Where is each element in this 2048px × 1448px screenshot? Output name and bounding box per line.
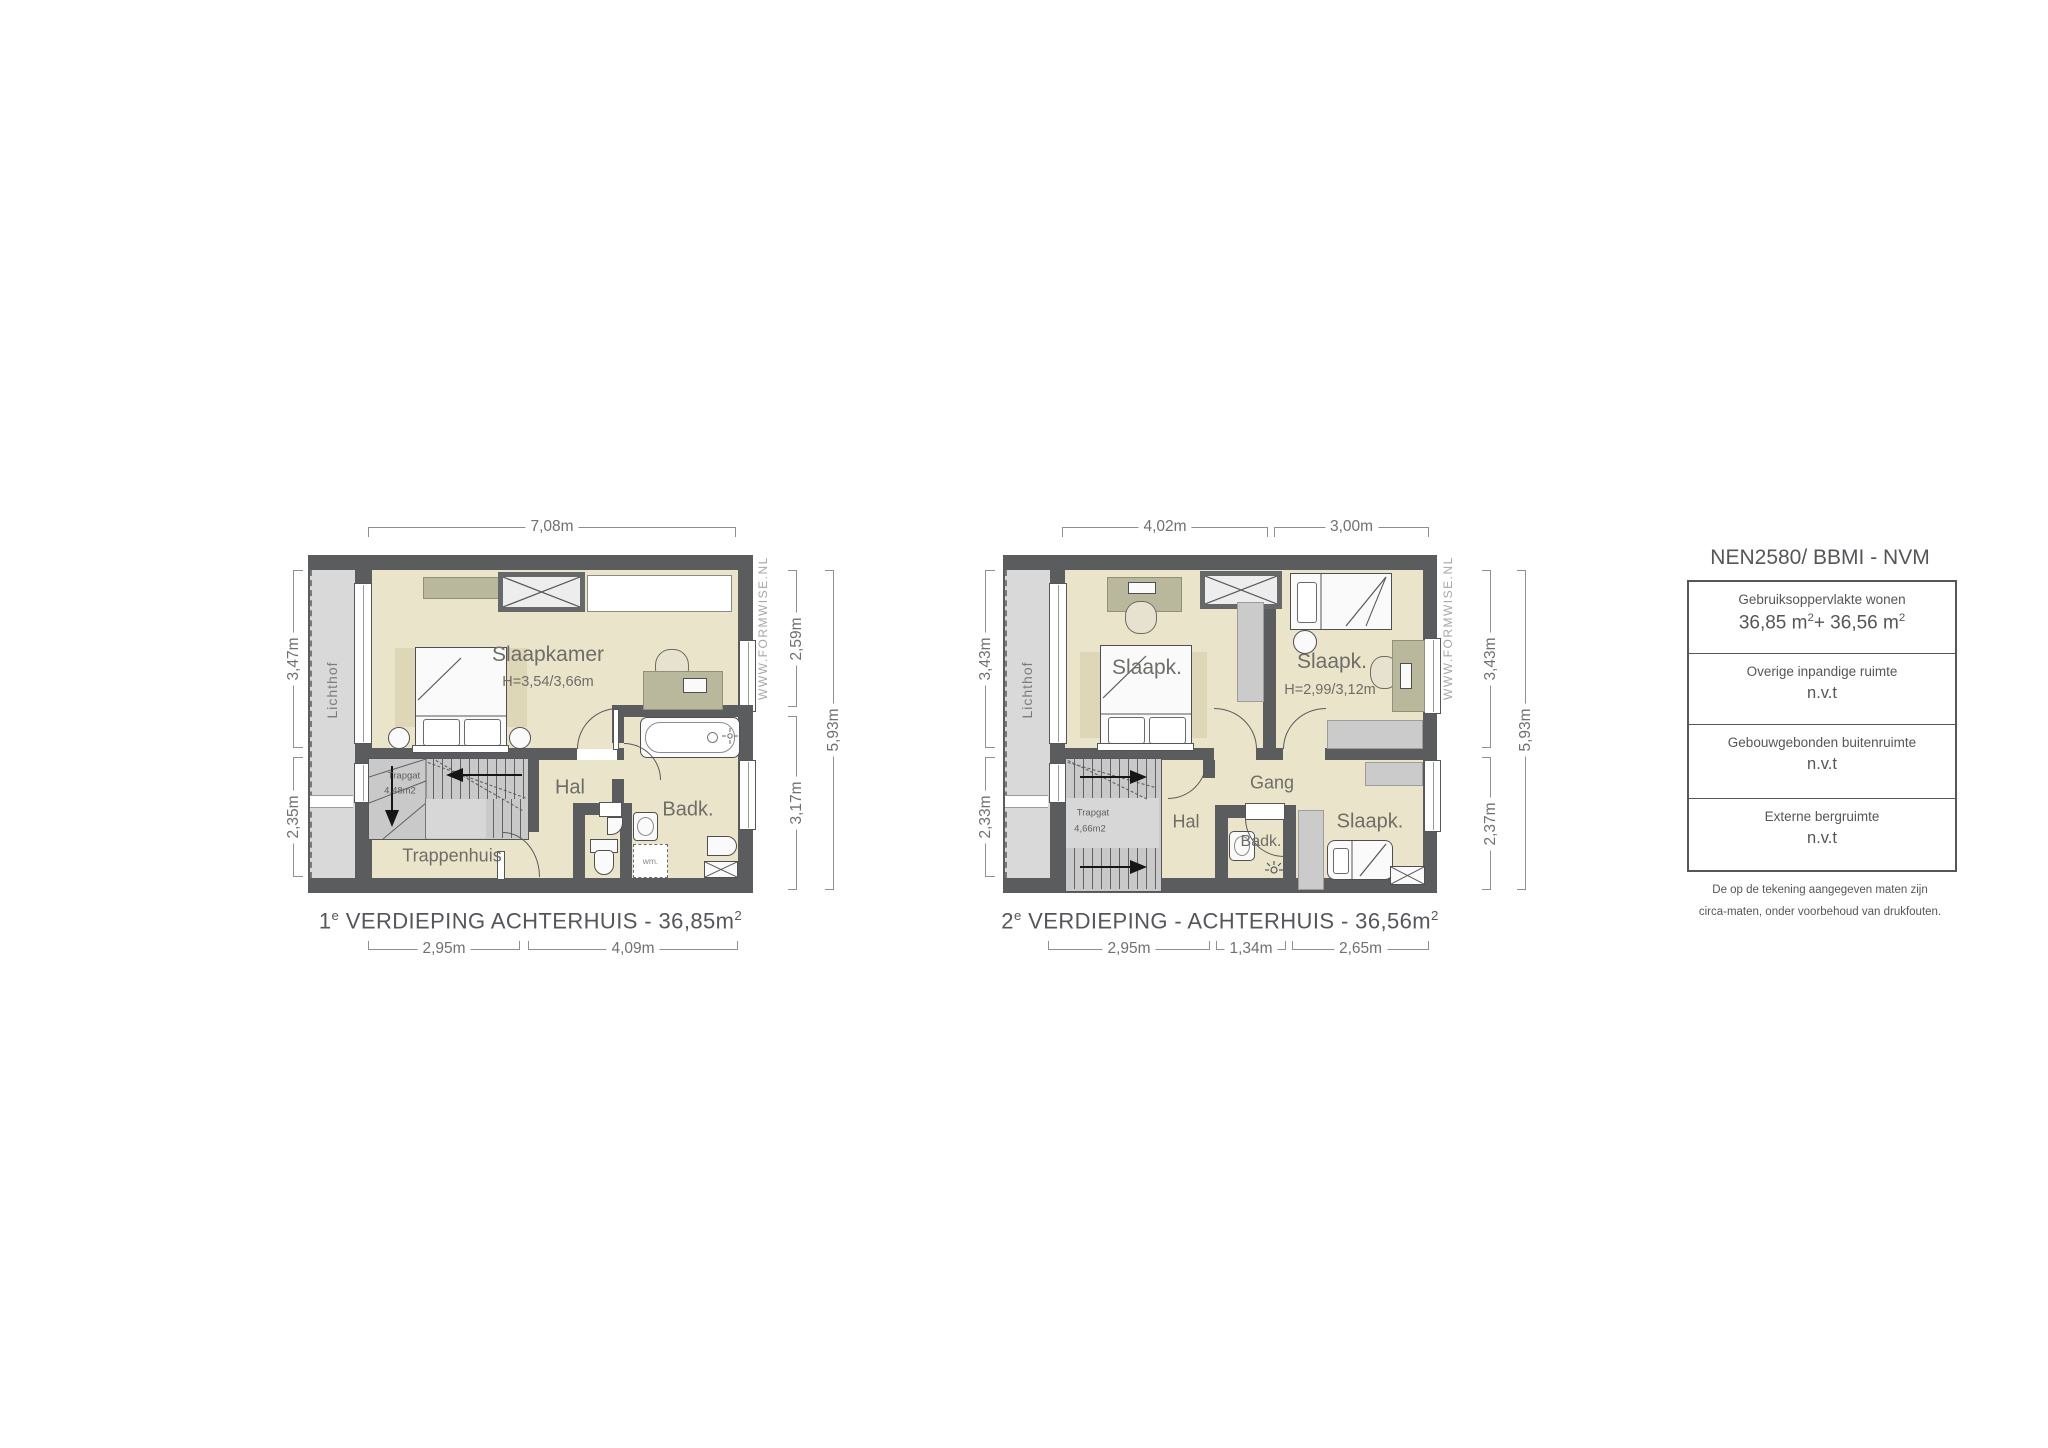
legend-row: Externe bergruimte n.v.t xyxy=(1689,798,1955,869)
legend-note-line1: De op de tekening aangegeven maten zijn xyxy=(1652,880,1988,902)
stair-arrow-icon xyxy=(1130,770,1147,784)
bidet xyxy=(707,836,737,856)
stair-arrow-line xyxy=(1080,866,1135,868)
wardrobe xyxy=(1365,762,1423,786)
stair-arrow-icon xyxy=(446,768,463,782)
legend-row-label: Overige inpandige ruimte xyxy=(1689,654,1955,679)
window xyxy=(739,640,756,712)
dim-label: 5,93m xyxy=(825,703,843,756)
watermark: WWW.FORMWISE.NL xyxy=(756,555,770,700)
legend-title: NEN2580/ BBMI - NVM xyxy=(1687,546,1953,570)
faucet-icon xyxy=(721,727,739,745)
lichthof-sill xyxy=(1005,795,1048,808)
room-label-badk: Badk. xyxy=(1241,833,1282,851)
ceiling-light-icon xyxy=(1264,860,1284,880)
washing-machine: wm. xyxy=(633,844,668,878)
door-leaf xyxy=(599,802,622,817)
bathtub-drain xyxy=(707,732,718,743)
room-label-slaapkamer: Slaapkamer xyxy=(492,643,604,667)
dim-top-left: 4,02m xyxy=(1062,527,1268,528)
bathtub xyxy=(640,717,740,758)
dim-label: 3,43m xyxy=(977,632,995,685)
dim-label: 3,43m xyxy=(1482,632,1500,685)
radiator-icon xyxy=(704,861,738,878)
wardrobe xyxy=(1237,602,1264,702)
window xyxy=(1424,638,1441,714)
stair-arrow-line xyxy=(1080,776,1135,778)
single-bed xyxy=(1327,840,1393,880)
interior-wall xyxy=(585,803,599,815)
stair-landing xyxy=(425,799,486,838)
legend-row: Gebruiksoppervlakte wonen 36,85 m2+ 36,5… xyxy=(1689,582,1955,653)
dim-bottom-left: 2,95m xyxy=(1048,949,1210,950)
radiator-icon xyxy=(1390,866,1425,885)
single-bed xyxy=(1290,573,1392,630)
dim-right-total: 5,93m xyxy=(833,570,834,890)
headboard xyxy=(412,745,509,753)
dim-label: 2,35m xyxy=(285,790,303,843)
dim-bottom-middle: 1,34m xyxy=(1216,949,1286,950)
pillow xyxy=(1149,717,1186,744)
monitor xyxy=(1128,582,1156,594)
dim-label: 2,65m xyxy=(1334,940,1387,958)
dim-label: 2,59m xyxy=(788,612,806,665)
room-label-hal: Hal xyxy=(1172,812,1199,833)
legend-row-value: n.v.t xyxy=(1689,679,1955,703)
stair-arrow-icon xyxy=(385,810,399,827)
room-label-slaapk-left: Slaapk. xyxy=(1112,656,1182,680)
dim-label: 4,09m xyxy=(606,940,659,958)
dim-label: 2,95m xyxy=(1102,940,1155,958)
legend-row-value: 36,85 m2+ 36,56 m2 xyxy=(1689,607,1955,634)
legend-table: Gebruiksoppervlakte wonen 36,85 m2+ 36,5… xyxy=(1687,580,1957,872)
dim-top: 7,08m xyxy=(368,527,736,528)
room-label-gang: Gang xyxy=(1250,773,1294,794)
desk-chair xyxy=(1125,601,1157,634)
interior-wall xyxy=(1256,748,1283,760)
stair-arrow-icon xyxy=(1130,860,1147,874)
washing-machine-label: wm. xyxy=(643,856,659,866)
toilet-bowl xyxy=(594,850,614,875)
dresser xyxy=(423,577,499,599)
watermark: WWW.FORMWISE.NL xyxy=(1441,555,1455,700)
dim-bottom-right: 4,09m xyxy=(528,949,738,950)
room-label-hal: Hal xyxy=(555,777,585,800)
monitor xyxy=(683,678,707,693)
monitor xyxy=(1400,663,1412,689)
dim-label: 2,37m xyxy=(1482,797,1500,850)
dim-label: 4,02m xyxy=(1138,518,1191,536)
dim-right-total: 5,93m xyxy=(1525,570,1526,890)
dim-label: 3,00m xyxy=(1325,518,1378,536)
legend-note: De op de tekening aangegeven maten zijn … xyxy=(1652,880,1988,924)
window xyxy=(739,760,756,830)
dim-bottom-right: 2,65m xyxy=(1292,949,1429,950)
stair-arrow-line xyxy=(462,774,522,776)
pillow xyxy=(1108,717,1145,744)
dim-left-lower: 2,35m xyxy=(293,757,294,877)
interior-wall xyxy=(1263,602,1276,748)
dim-right-lower: 3,17m xyxy=(796,716,797,890)
window xyxy=(354,583,372,744)
dim-label: 3,17m xyxy=(788,776,806,829)
pillow xyxy=(1333,848,1349,874)
room-height-label: H=3,54/3,66m xyxy=(502,674,594,690)
trapgat-label: Trapgat xyxy=(388,771,420,782)
dim-label: 5,93m xyxy=(1517,703,1535,756)
window xyxy=(1049,583,1067,744)
lichthof-area xyxy=(1005,570,1050,878)
floorplan-sheet: Trapgat 4,48m2 wm. xyxy=(0,0,2048,1448)
lichthof-sill xyxy=(310,795,353,808)
trapgat-area-label: 4,48m2 xyxy=(384,786,416,797)
dim-label: 1,34m xyxy=(1224,940,1277,958)
room-label-lichthof: Lichthof xyxy=(1019,661,1035,718)
washbasin xyxy=(633,812,658,841)
legend-row: Gebouwgebonden buitenruimte n.v.t xyxy=(1689,724,1955,798)
dim-left-lower: 2,33m xyxy=(985,757,986,877)
lichthof-area xyxy=(310,570,355,878)
nightstand xyxy=(509,727,531,749)
dim-right-upper: 2,59m xyxy=(796,570,797,707)
trapgat-area-label: 4,66m2 xyxy=(1074,824,1106,835)
dim-right-lower: 2,37m xyxy=(1490,757,1491,890)
legend-row-value: n.v.t xyxy=(1689,750,1955,774)
dim-left-upper: 3,47m xyxy=(293,570,294,748)
legend-row-label: Externe bergruimte xyxy=(1689,799,1955,824)
dim-left-upper: 3,43m xyxy=(985,570,986,748)
wardrobe xyxy=(1298,810,1324,890)
room-label-slaapk-bottom: Slaapk. xyxy=(1337,811,1404,834)
interior-wall xyxy=(1325,748,1423,760)
pillow xyxy=(423,719,460,746)
dim-bottom-left: 2,95m xyxy=(368,949,520,950)
dim-label: 2,33m xyxy=(977,790,995,843)
legend-note-line2: circa-maten, onder voorbehoud van drukfo… xyxy=(1652,902,1988,924)
dim-label: 2,95m xyxy=(417,940,470,958)
legend-row-label: Gebruiksoppervlakte wonen xyxy=(1689,582,1955,607)
basin-bowl xyxy=(637,817,654,836)
ventilation-shaft-icon xyxy=(498,572,585,612)
interior-wall xyxy=(573,803,585,878)
dim-right-upper: 3,43m xyxy=(1490,570,1491,748)
interior-wall xyxy=(612,779,624,803)
pillow xyxy=(1297,582,1317,623)
door-opening xyxy=(577,749,617,760)
headboard xyxy=(1097,743,1194,751)
room-label-lichthof: Lichthof xyxy=(324,661,340,718)
dim-label: 3,47m xyxy=(285,632,303,685)
plan-title: 1e VERDIEPING ACHTERHUIS - 36,85m2 xyxy=(288,908,773,934)
trapgat-label: Trapgat xyxy=(1077,808,1109,819)
nightstand xyxy=(388,727,410,749)
dim-top-right: 3,00m xyxy=(1274,527,1429,528)
pillow xyxy=(464,719,501,746)
legend-row-label: Gebouwgebonden buitenruimte xyxy=(1689,725,1955,750)
room-height-label: H=2,99/3,12m xyxy=(1284,682,1376,698)
dim-label: 7,08m xyxy=(525,518,578,536)
plan-title: 2e VERDIEPING - ACHTERHUIS - 36,56m2 xyxy=(983,908,1457,934)
door-leaf xyxy=(613,709,619,750)
wardrobe xyxy=(1327,720,1423,749)
interior-wall xyxy=(1215,805,1228,890)
room-label-trappenhuis: Trappenhuis xyxy=(402,846,501,867)
legend-row-value: n.v.t xyxy=(1689,824,1955,848)
legend-row: Overige inpandige ruimte n.v.t xyxy=(1689,653,1955,724)
room-label-slaapk-right: Slaapk. xyxy=(1297,650,1367,674)
room-label-badk: Badk. xyxy=(662,799,713,822)
closet xyxy=(587,575,732,612)
window xyxy=(1424,760,1441,832)
